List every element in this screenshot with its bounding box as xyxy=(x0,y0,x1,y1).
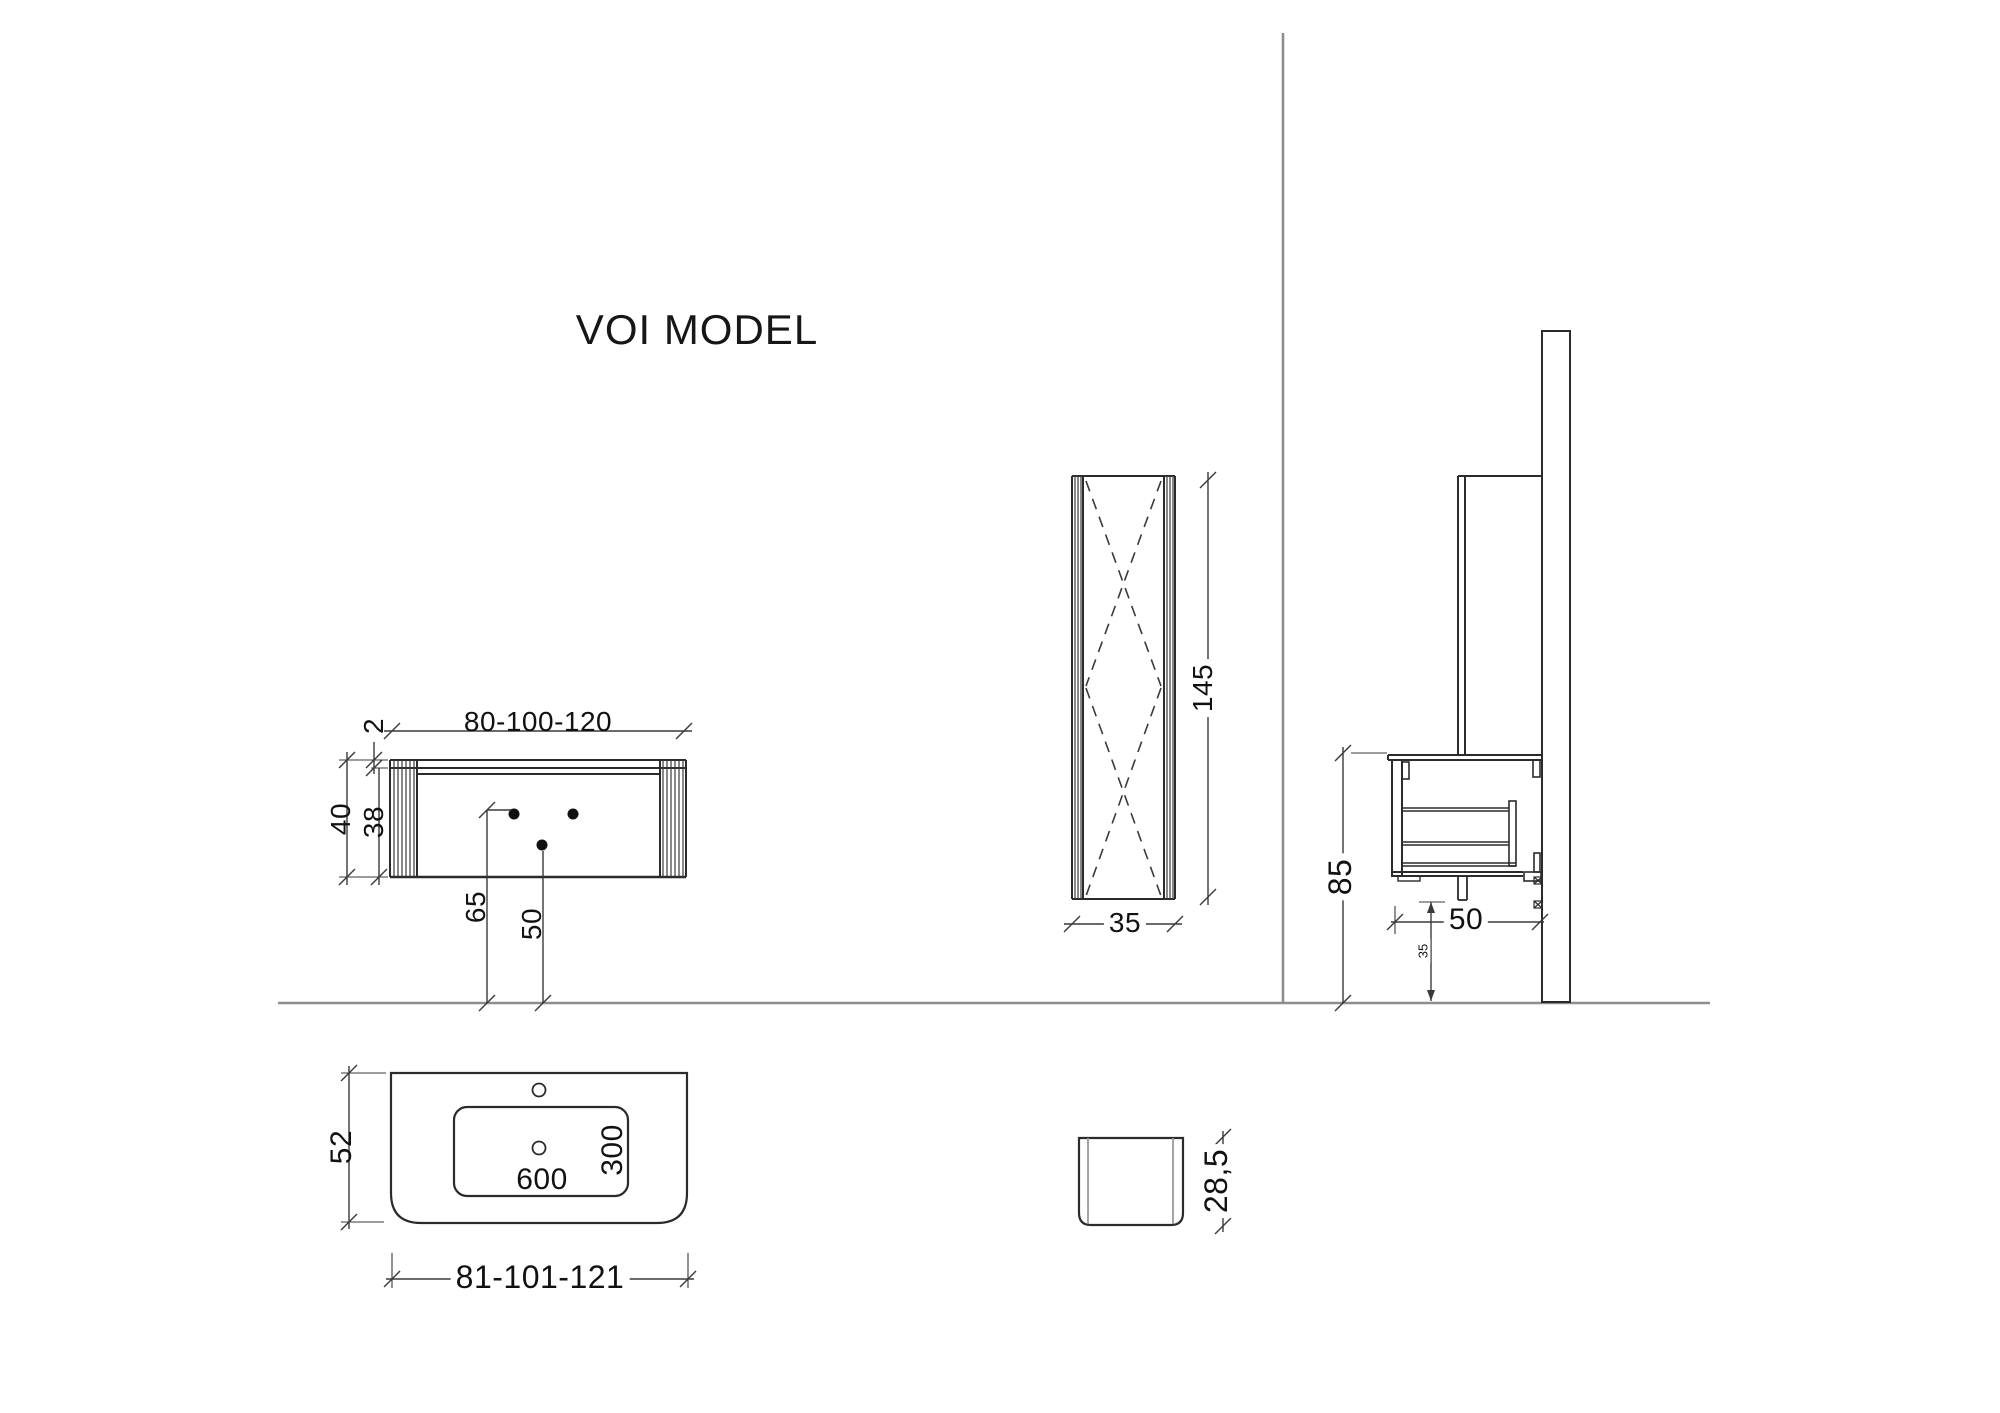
drawing-title: VOI MODEL xyxy=(576,309,818,351)
mounting-holes xyxy=(509,809,579,851)
column-height-dim-label: 145 xyxy=(1188,659,1218,717)
side-drain-offset-dim-label: 35 xyxy=(1416,939,1431,963)
vanity-front-view xyxy=(390,760,686,877)
front-width-dim-label: 80-100-120 xyxy=(464,708,612,736)
basin-bowl-depth-label: 300 xyxy=(598,1124,628,1176)
basin-width-dim-label: 81-101-121 xyxy=(451,1260,630,1294)
side-depth-dim-label: 50 xyxy=(1444,904,1488,936)
drain-height-dim-label: 50 xyxy=(518,908,546,940)
column-front-view xyxy=(1072,476,1175,899)
drain-pipe xyxy=(1458,876,1467,900)
side-view xyxy=(1388,331,1570,1002)
drawer-back-panel xyxy=(1509,801,1516,866)
basin-side-height-dim-label: 28,5 xyxy=(1199,1144,1233,1218)
front-total-height-dim-label: 40 xyxy=(327,803,355,835)
column-left-hatch xyxy=(1075,476,1081,899)
basin-top-view xyxy=(391,1073,687,1223)
faucet-hole xyxy=(533,1084,546,1097)
column-width-dim-label: 35 xyxy=(1104,908,1146,938)
column-right-hatch xyxy=(1167,476,1173,899)
side-mount-height-dim-label: 85 xyxy=(1323,854,1357,901)
right-pilaster-hatch xyxy=(663,760,683,877)
faucet-height-dim-label: 65 xyxy=(462,891,490,923)
front-body-height-dim-label: 38 xyxy=(360,806,388,838)
linework-svg xyxy=(0,0,2000,1413)
left-pilaster-hatch xyxy=(394,760,414,877)
drain-hole xyxy=(533,1142,546,1155)
basin-depth-dim-label: 52 xyxy=(327,1130,357,1164)
basin-side-view xyxy=(1079,1138,1183,1225)
side-view-dimensions xyxy=(1335,745,1548,1011)
vanity-front-dimensions xyxy=(339,723,692,1011)
front-top-thickness-dim-label: 2 xyxy=(360,718,388,734)
door-swing-dashed-lines xyxy=(1086,481,1161,896)
basin-bowl-width-label: 600 xyxy=(516,1165,568,1195)
technical-drawing-canvas: VOI MODEL 80-100-120 2 40 38 65 50 145 3… xyxy=(0,0,2000,1413)
back-panel xyxy=(1542,331,1570,1002)
